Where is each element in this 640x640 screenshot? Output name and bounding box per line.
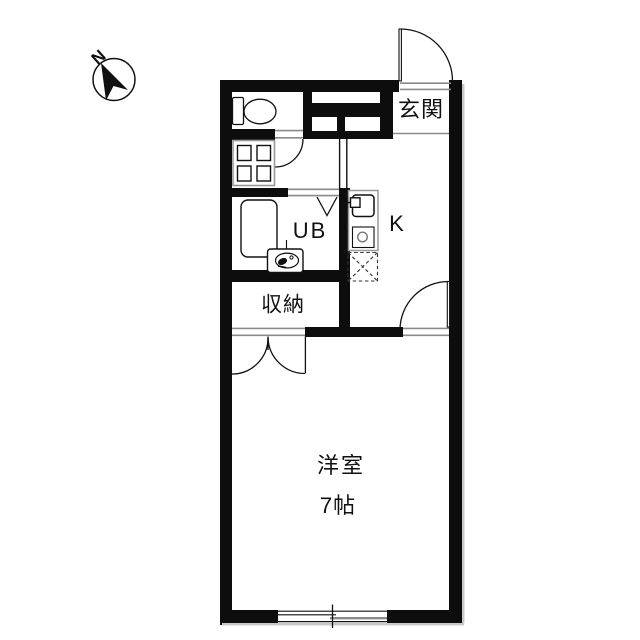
- wall: [232, 188, 288, 197]
- room-label-kitchen: K: [389, 213, 405, 235]
- thin-partition: [340, 139, 347, 190]
- room-label-entrance: 玄関: [398, 99, 444, 121]
- toilet-icon: [233, 98, 277, 125]
- wall-shadow: [462, 84, 465, 623]
- bath-folding-door-icon: [317, 197, 337, 216]
- floorplan-canvas: N 玄関 UB K 収納 洋室 7帖: [0, 0, 640, 640]
- room-label-main-room: 洋室: [317, 455, 365, 477]
- refrigerator-space-icon: [348, 253, 378, 282]
- wall: [449, 80, 462, 623]
- cabinet-compartment: [345, 117, 380, 131]
- washing-machine-pan-icon: [233, 141, 275, 186]
- wall-shadow: [222, 623, 464, 626]
- stove-icon: [353, 227, 375, 248]
- wall: [232, 129, 275, 140]
- room-label-storage: 収納: [261, 295, 305, 316]
- kitchen-door-swing: [400, 282, 450, 331]
- cabinet-compartment: [312, 117, 337, 131]
- toilet-door-swing: [275, 139, 303, 167]
- entrance-door-swing: [399, 29, 453, 81]
- floorplan-drawing: [0, 0, 640, 640]
- room-label-unit-bath: UB: [293, 220, 328, 242]
- cabinet-compartment: [312, 92, 380, 103]
- closet-double-door-swing: [232, 337, 305, 375]
- wall: [220, 80, 399, 92]
- wall: [305, 327, 403, 337]
- wall: [220, 80, 232, 625]
- room-size-label: 7帖: [320, 495, 356, 517]
